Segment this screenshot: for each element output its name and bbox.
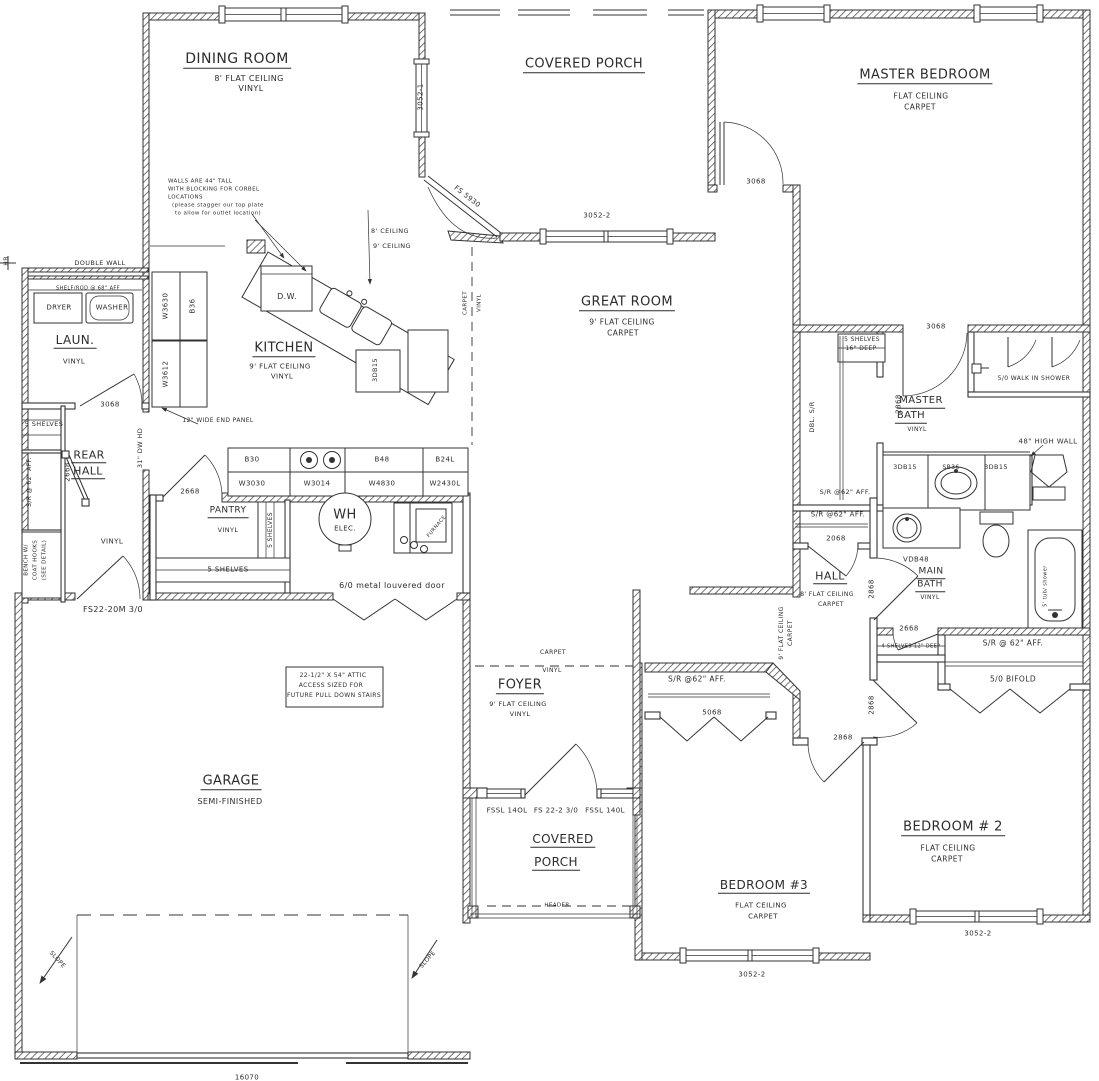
room-covered-porch-top: COVERED PORCH	[523, 57, 645, 73]
window-bed3: 3052-2	[738, 972, 765, 979]
front-door: FS 22-2 3/0	[534, 808, 578, 815]
rooms-label: VINYL	[238, 85, 263, 93]
room-rear-hall-2: HALL	[71, 465, 105, 479]
closets-label: S/R @62" AFF.	[668, 675, 726, 683]
cabinets-label: ELEC.	[334, 526, 356, 533]
note-double-wall: DOUBLE WALL	[74, 260, 125, 267]
rooms-label: CARPET	[748, 914, 778, 921]
cabinets-label: W4830	[369, 481, 396, 488]
note-corbel-2: WITH BLOCKING FOR CORBEL	[168, 187, 259, 193]
door-2868-main-bath: 2868	[896, 394, 903, 413]
note-attic-2: ACCESS SIZED FOR	[299, 683, 363, 689]
door-2868-bedroom-2: 2868	[869, 695, 876, 714]
closets-label: (SEE DETAIL)	[42, 540, 48, 580]
cabinets-label: B36	[190, 299, 197, 314]
note-corbel-1: WALLS ARE 44" TALL	[168, 179, 232, 185]
closets-label: 5 SHELVES	[844, 337, 880, 343]
note-corbel-3: LOCATIONS	[168, 195, 203, 201]
floor-transition-carpet: CARPET	[463, 291, 469, 315]
window-3052-2-porch: 3052-2	[583, 213, 610, 220]
rooms-label: VINYL	[101, 539, 123, 546]
sidelite-right: FSSL 140L	[585, 808, 625, 815]
door-2068-hall-closet: 2068	[826, 536, 845, 543]
door-5068-bifold: 5068	[702, 710, 721, 717]
closets-label: 5 SHELVES	[207, 567, 248, 574]
note-slope-right: SLOPE	[419, 950, 438, 970]
closets-label: S/R @62" AFF.	[820, 489, 871, 496]
note-corbel-5: to allow for outlet location)	[175, 211, 261, 217]
rooms-label: FLAT CEILING	[921, 844, 976, 852]
garage-door-size: 16070	[235, 1075, 259, 1081]
sidelite-left: FSSL 14OL	[487, 808, 528, 815]
rooms-label: VINYL	[907, 427, 926, 433]
closets-label: COAT HOOKS	[33, 540, 39, 580]
door-fs22-garage: FS22-20M 3/0	[83, 606, 143, 614]
rooms-label: CARPET	[788, 620, 794, 646]
note-high-wall: 48" HIGH WALL	[1019, 439, 1078, 446]
note-dw-header: 31" DW HD	[137, 428, 144, 468]
room-garage: GARAGE	[201, 774, 262, 790]
cabinets-label: W3030	[239, 481, 266, 488]
room-covered-porch-bottom: COVERED	[530, 833, 595, 848]
rooms-label: FLAT CEILING	[735, 903, 787, 910]
window-bed2: 3052-2	[964, 931, 991, 938]
room-bedroom-3: BEDROOM #3	[718, 879, 810, 894]
room-covered-porch-bottom-2: PORCH	[532, 856, 580, 871]
note-attic-3: FUTURE PULL DOWN STAIRS	[287, 693, 381, 699]
note-corbel-4: (please stagger our top plate	[172, 203, 264, 209]
cabinets-label: B30	[245, 457, 260, 464]
hall-ceiling-note: 9' FLAT CEILING	[779, 606, 785, 660]
rooms-label: VINYL	[218, 527, 239, 534]
closets-label: S/R @ 62" AFF.	[27, 457, 33, 507]
fixture-water-heater: WH	[333, 509, 356, 522]
closets-label: 5 SHELVES	[25, 421, 64, 428]
rooms-label: CARPET	[931, 855, 963, 863]
cabinets-label: W3014	[304, 481, 331, 488]
cabinets-label: SB36	[942, 465, 959, 471]
cabinets-label: W2430L	[429, 481, 460, 488]
rooms-label: CARPET	[607, 329, 639, 337]
note-attic-1: 22-1/2" X 54" ATTIC	[300, 673, 367, 679]
foyer-transition-carpet: CARPET	[540, 650, 566, 656]
door-fs5930: FS 5930	[453, 185, 482, 210]
floor-transition-vinyl: VINYL	[477, 294, 483, 312]
room-hall: HALL	[813, 570, 847, 584]
closets-label: 16" DEEP	[845, 346, 876, 352]
rooms-label: 8' FLAT CEILING	[800, 592, 854, 598]
label-layer: DINING ROOM8' FLAT CEILINGVINYLCOVERED P…	[0, 0, 1099, 1081]
fixture-dishwasher: D.W.	[277, 293, 297, 301]
room-kitchen: KITCHEN	[252, 341, 315, 357]
rooms-label: VINYL	[510, 711, 531, 718]
door-2668-rear-closet: 2668	[65, 462, 72, 481]
rooms-label: 8' FLAT CEILING	[214, 75, 283, 83]
window-3052-1: 3052-1	[418, 83, 425, 110]
closets-label: BENCH W/	[24, 544, 30, 576]
room-master-bedroom: MASTER BEDROOM	[857, 68, 992, 84]
room-master-bath: MASTER	[897, 396, 945, 409]
room-bedroom-2: BEDROOM # 2	[901, 820, 1005, 836]
closets-label: 4 SHELVES 12" DEEP	[881, 645, 940, 650]
note-header: HEADER	[544, 903, 569, 909]
fixture-furnace: FURNACE	[427, 515, 448, 539]
room-foyer: FOYER	[496, 678, 544, 694]
rooms-label: CARPET	[818, 602, 844, 608]
rooms-label: FLAT CEILING	[894, 92, 949, 100]
note-end-panel: 12" WIDE END PANEL	[182, 418, 253, 424]
fixture-vanity-main: VDB48	[903, 557, 929, 564]
cabinets-label: W3630	[163, 293, 170, 320]
note-9-ceiling: 9' CEILING	[373, 243, 411, 250]
rooms-label: VINYL	[920, 595, 939, 601]
door-3068-master-bath: 3068	[926, 324, 945, 331]
closets-label: S/R @62" AFF.	[811, 512, 865, 519]
room-pantry: PANTRY	[208, 506, 249, 518]
rooms-label: 9' FLAT CEILING	[249, 364, 310, 371]
fixture-washer: WASHER	[96, 305, 129, 312]
cabinets-label: W3612	[163, 361, 170, 388]
cabinets-label: B24L	[435, 457, 454, 464]
rooms-label: SEMI-FINISHED	[197, 798, 262, 806]
note-tub: 5' tub/ shower	[1044, 565, 1049, 606]
note-shelf-rod: SHELF/ROD @ 68" AFF	[56, 287, 120, 292]
room-rear-hall: REAR	[71, 449, 106, 463]
room-great-room: GREAT ROOM	[579, 295, 675, 311]
cabinets-label: 3DB15	[893, 464, 917, 471]
door-2668-pantry: 2668	[180, 489, 199, 496]
rooms-label: VINYL	[63, 359, 85, 366]
fixture-dryer: DRYER	[46, 305, 71, 312]
door-louvered: 6/0 metal louvered door	[339, 582, 445, 590]
rooms-label: CARPET	[904, 103, 936, 111]
door-50-bifold: 5/0 BIFOLD	[990, 675, 1036, 683]
room-main-bath: MAIN	[917, 567, 946, 579]
door-3068-laundry: 3068	[100, 402, 119, 409]
rooms-label: 9' FLAT CEILING	[589, 318, 654, 326]
closets-label: S/R @ 62" AFF.	[983, 639, 1044, 647]
cabinets-label: 3DB15	[984, 464, 1008, 471]
foyer-transition-vinyl: VINYL	[542, 668, 561, 674]
cabinets-label: 3DB15	[372, 358, 379, 382]
note-hose-bib: HB	[4, 256, 10, 265]
door-2668-linen: 2668	[899, 626, 918, 633]
door-2868-hall-a: 2868	[869, 579, 876, 598]
room-dining-room: DINING ROOM	[183, 52, 291, 69]
door-3068-porch: 3068	[746, 179, 765, 186]
cabinets-label: B48	[375, 457, 390, 464]
floor-plan-sheet: DINING ROOM8' FLAT CEILINGVINYLCOVERED P…	[0, 0, 1099, 1081]
closets-label: 5 SHELVES	[268, 512, 274, 548]
note-8-ceiling: 8' CEILING	[371, 228, 409, 235]
note-slope-left: SLOPE	[48, 950, 67, 970]
room-main-bath-2: BATH	[915, 580, 945, 592]
room-laundry: LAUN.	[54, 334, 97, 349]
closets-label: DBL. S/R	[809, 401, 816, 432]
note-walk-in-shower: 5/0 WALK IN SHOWER	[998, 376, 1071, 382]
rooms-label: 9' FLAT CEILING	[489, 701, 546, 708]
door-2868-bedroom-3: 2868	[833, 735, 852, 742]
rooms-label: VINYL	[271, 374, 293, 381]
